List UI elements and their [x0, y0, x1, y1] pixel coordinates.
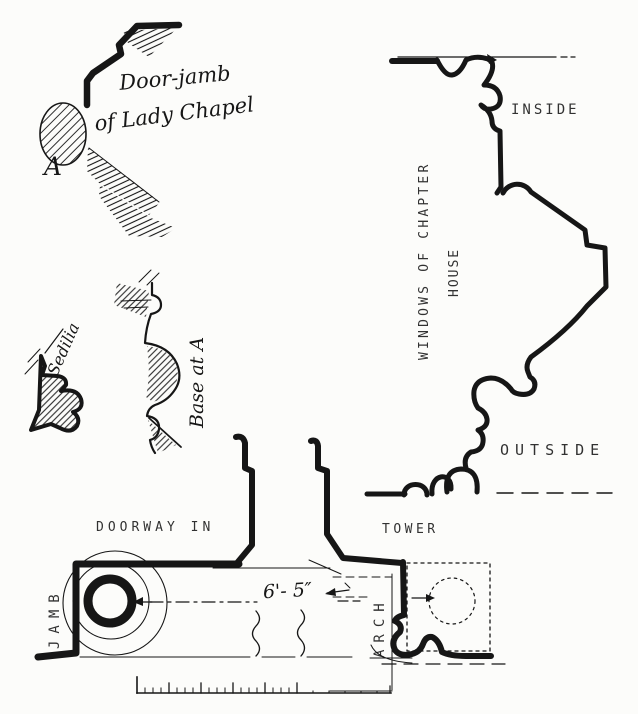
base-at-a-profile-drawing [114, 270, 181, 453]
chapter-house-window-profile [367, 54, 612, 495]
dimension-annotation: 6'- 5″ [262, 579, 312, 604]
point-a-caption: A [44, 152, 62, 181]
windows-of-chapter-house-label-line1: WINDOWS OF CHAPTER [417, 162, 432, 360]
base-at-a-caption: Base at A [186, 337, 208, 428]
engraved-architectural-plate: Door-jamb of Lady Chapel A Sedilia Base … [0, 0, 638, 714]
windows-of-chapter-house-label-line2: HOUSE [447, 248, 462, 297]
inside-label: INSIDE [511, 102, 580, 118]
arch-label: ARCH [372, 596, 388, 658]
doorway-plan-drawing [38, 437, 505, 691]
doorway-in-label: DOORWAY IN [96, 520, 214, 535]
tower-label: TOWER [382, 522, 439, 537]
jamb-label: JAMB [47, 587, 63, 649]
outside-label: OUTSIDE [500, 441, 605, 459]
